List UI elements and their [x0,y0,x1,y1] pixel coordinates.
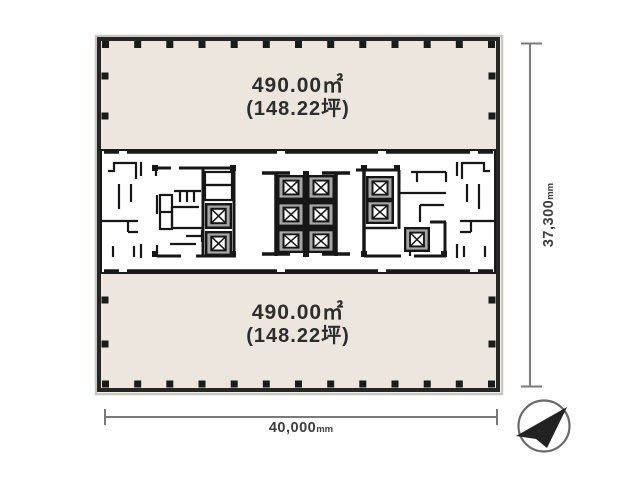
upper-zone-area-tsubo: (148.22坪) [128,97,468,122]
width-dimension-label: 40,000mm [105,419,497,437]
elevator-shaft-icon [206,232,231,255]
elevator-shaft-icon [206,204,231,228]
height-dimension-unit: mm [545,183,556,200]
elevator-shaft-icon [367,201,393,223]
elevator-bank-center [262,171,350,257]
height-dimension-label: 37,300mm [540,183,558,247]
elevator-shaft-icon [405,228,429,251]
height-dimension-value: 37,300 [541,200,557,247]
height-dimension-line [521,44,542,387]
elevator-shaft-icon [308,230,334,252]
elevator-shaft-icon [367,177,393,199]
elevator-shaft-icon [278,176,304,199]
upper-zone-label: 490.00㎡ (148.22坪) [128,74,468,122]
floor-plan-page: 490.00㎡ (148.22坪) 490.00㎡ (148.22坪) 40,0… [0,0,640,480]
lower-zone-label: 490.00㎡ (148.22坪) [128,301,468,349]
lower-zone-area-tsubo: (148.22坪) [128,324,468,349]
upper-zone-area-sqm: 490.00㎡ [128,74,468,97]
elevator-shaft-icon [278,203,304,226]
north-arrow-compass-icon [516,401,570,452]
elevator-shaft-icon [308,176,334,199]
lower-zone-area-sqm: 490.00㎡ [128,301,468,324]
elevator-shaft-icon [278,230,304,252]
width-dimension-unit: mm [316,424,333,435]
elevator-shaft-icon [308,203,334,226]
width-dimension-value: 40,000 [269,420,316,436]
